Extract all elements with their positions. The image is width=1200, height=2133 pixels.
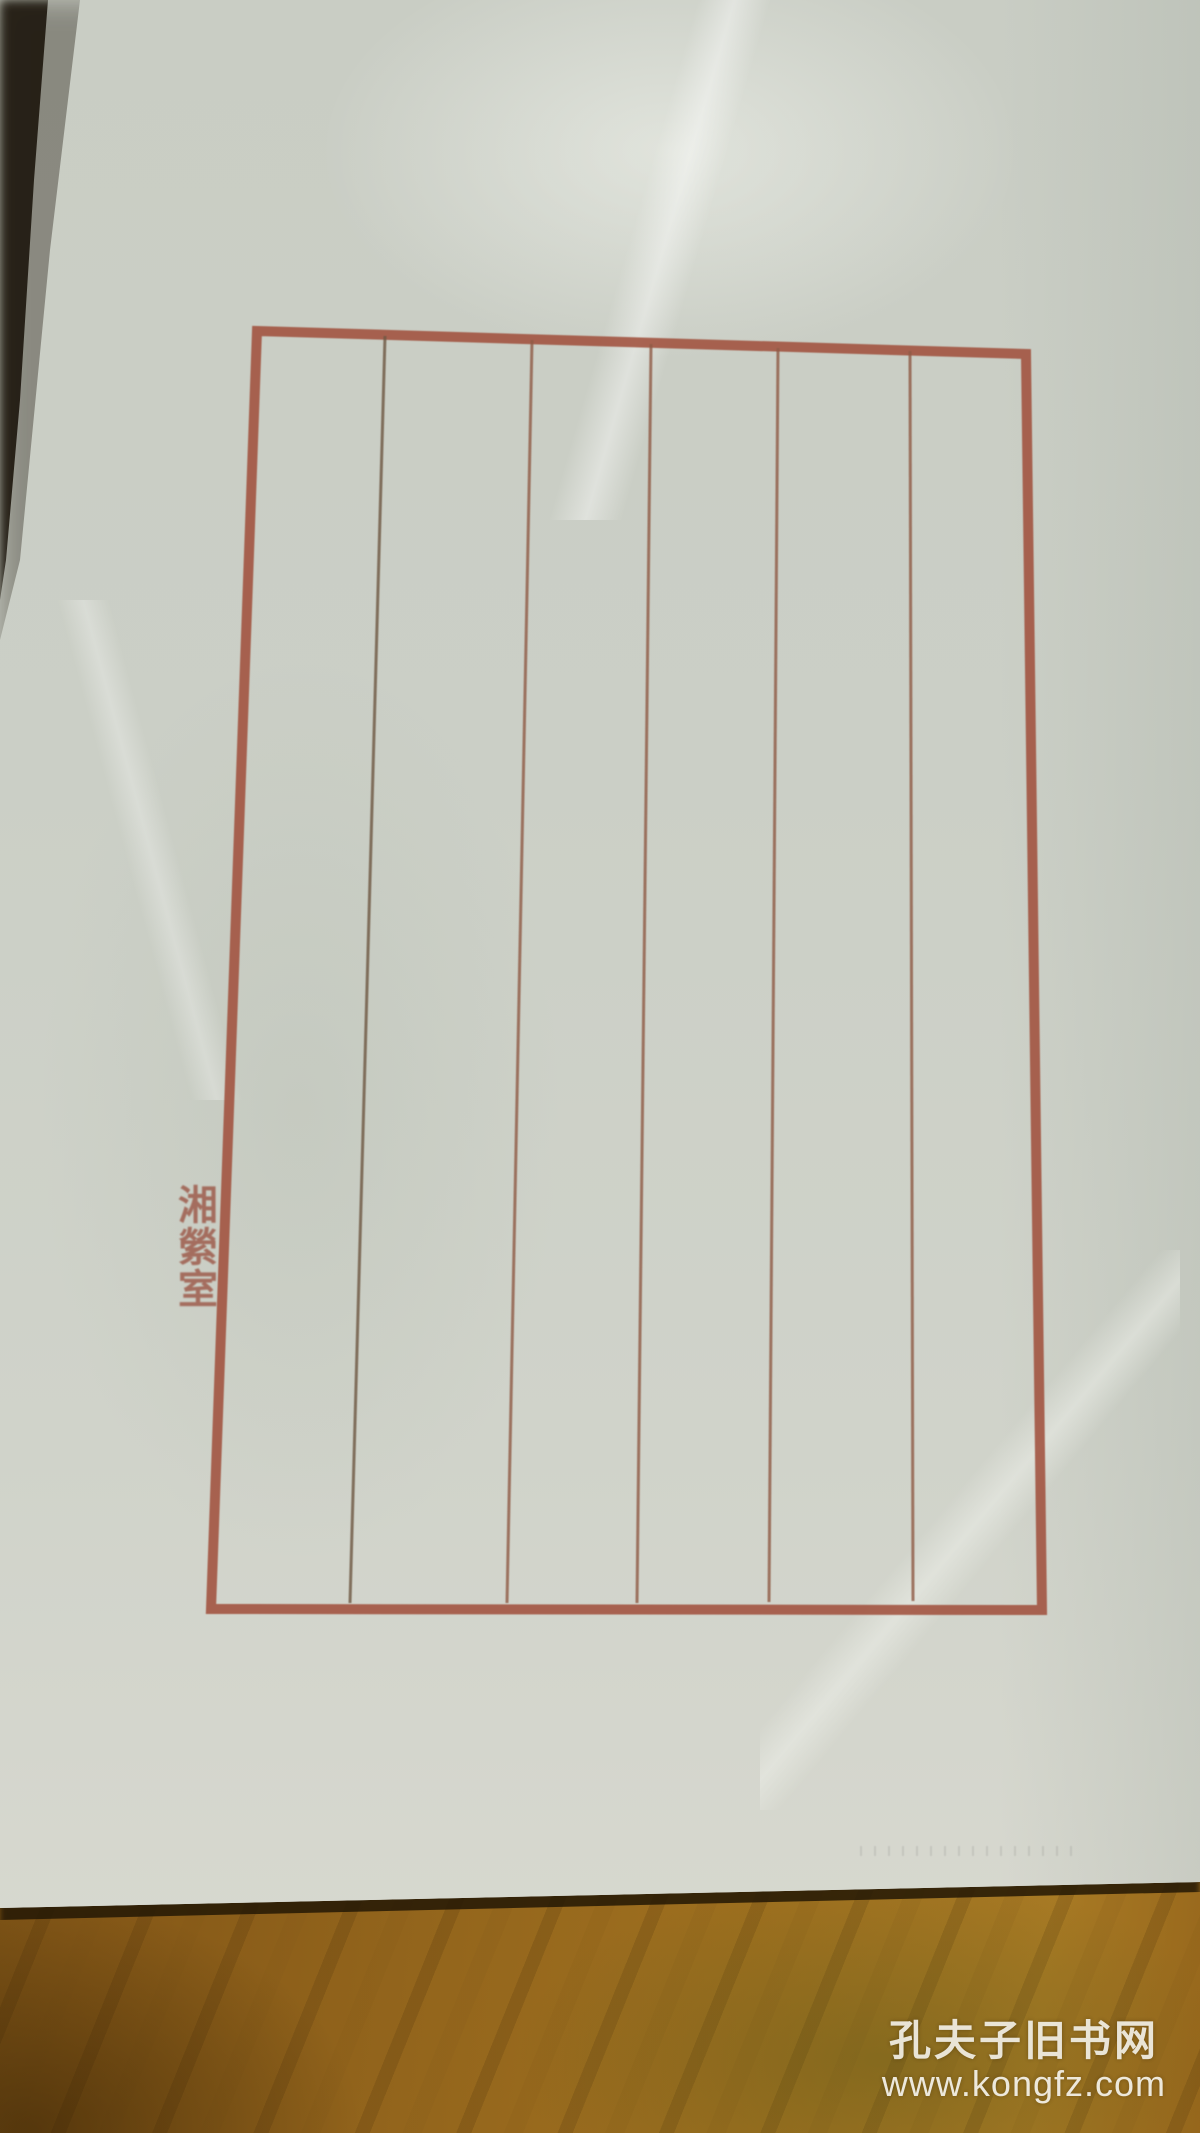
column-rule-line — [507, 340, 532, 1603]
watermark-site-url: www.kongfz.com — [882, 2066, 1166, 2102]
studio-seal-text: 湘縈室 — [150, 1184, 218, 1334]
red-ruled-grid — [0, 0, 1200, 2133]
column-rule-line — [350, 336, 385, 1603]
column-rule-line — [637, 344, 651, 1603]
column-rule-line — [769, 348, 778, 1602]
frame-border — [211, 331, 1042, 1610]
photo-of-letter-paper: 湘縈室 孔夫子旧书网 www.kongfz.com — [0, 0, 1200, 2133]
faint-pencil-marks — [860, 1846, 1080, 1856]
watermark-site-name: 孔夫子旧书网 — [882, 2018, 1166, 2064]
column-rule-line — [910, 351, 913, 1601]
kongfz-watermark: 孔夫子旧书网 www.kongfz.com — [882, 2018, 1166, 2102]
